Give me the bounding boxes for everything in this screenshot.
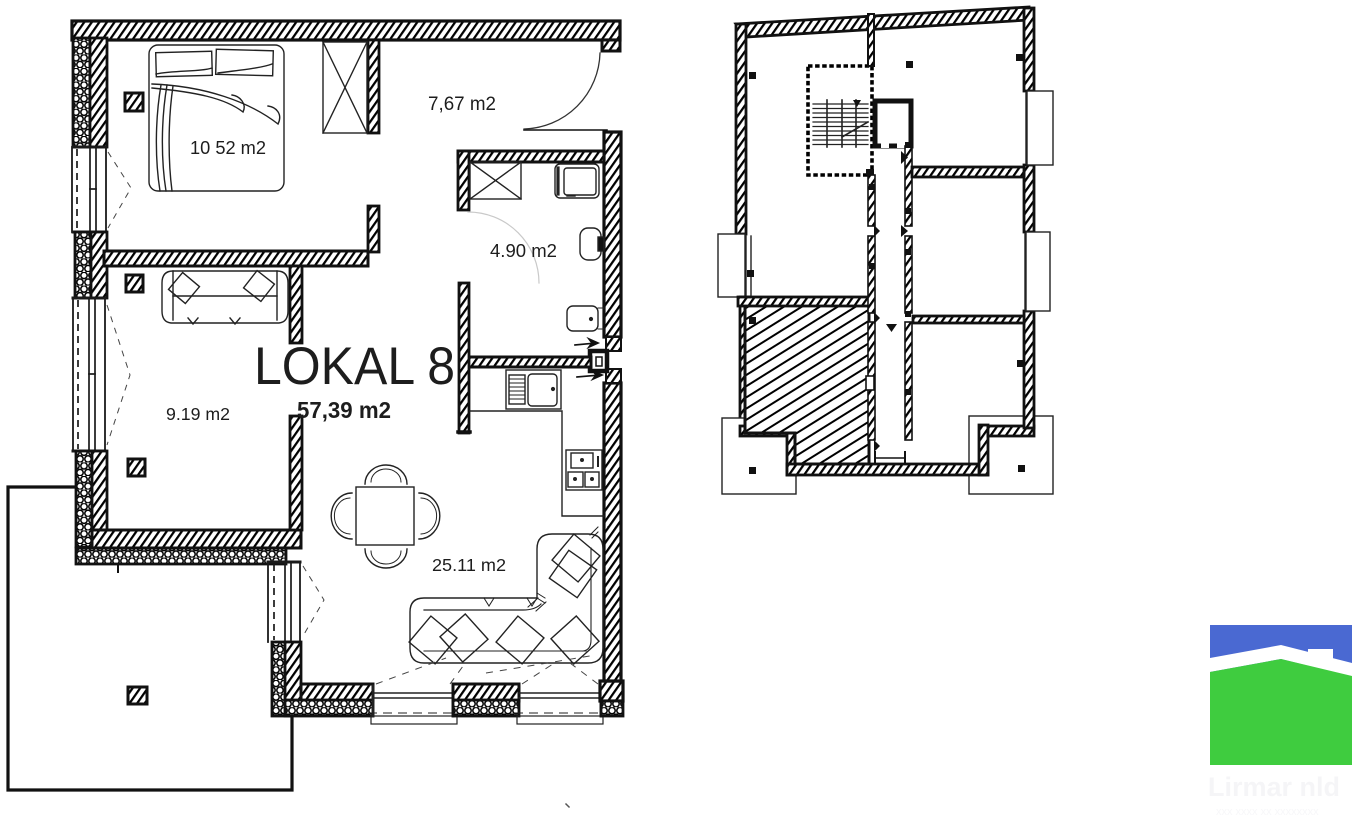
svg-text:xxx xxxx xx xxxxxxxx: xxx xxxx xx xxxxxxxx bbox=[1216, 806, 1319, 818]
svg-text:Lirmar nld: Lirmar nld bbox=[1208, 772, 1340, 802]
svg-text:LOKAL 8: LOKAL 8 bbox=[254, 337, 455, 396]
svg-text:7,67 m2: 7,67 m2 bbox=[428, 94, 496, 115]
svg-text:10 52 m2: 10 52 m2 bbox=[190, 137, 266, 158]
svg-text:9.19 m2: 9.19 m2 bbox=[166, 404, 230, 424]
svg-text:25.11 m2: 25.11 m2 bbox=[432, 555, 506, 575]
svg-text:57,39 m2: 57,39 m2 bbox=[297, 397, 391, 423]
svg-text:4.90 m2: 4.90 m2 bbox=[490, 240, 557, 261]
